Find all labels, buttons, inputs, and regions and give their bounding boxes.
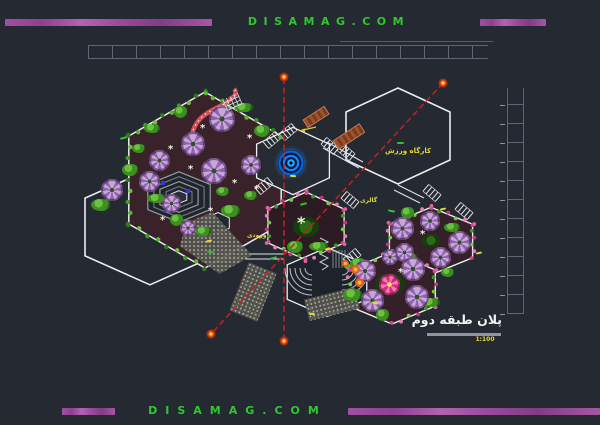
blue-block-mark	[186, 189, 190, 193]
bush	[234, 103, 253, 112]
hexagon-cell	[268, 192, 344, 260]
banner-bar-bottom-left	[62, 408, 115, 415]
plant-mark: *	[254, 187, 259, 193]
plant-mark: *	[420, 232, 425, 238]
hexagon-cell	[346, 88, 450, 184]
flower-purple	[201, 158, 227, 184]
tree-symbol: *	[297, 218, 305, 228]
plant-mark: *	[160, 218, 165, 224]
green-mark	[270, 256, 277, 260]
bush	[343, 289, 362, 301]
flower-purple	[401, 257, 425, 281]
flower-orange	[351, 265, 360, 274]
banner-bar-top-left	[5, 19, 212, 26]
flower-purple	[101, 179, 123, 201]
plant-mark: *	[188, 167, 193, 173]
yellow-mark	[476, 251, 482, 254]
yellow-mark	[206, 239, 212, 242]
flower-purple	[209, 106, 235, 132]
bush	[91, 199, 110, 211]
grass-mound	[375, 273, 405, 295]
yellow-mark	[325, 248, 331, 251]
room-label: گالری	[360, 197, 377, 204]
flower-orange	[342, 260, 349, 267]
bush	[216, 187, 229, 196]
flower-purple	[180, 220, 196, 236]
bush	[287, 241, 303, 253]
flower-purple	[420, 211, 440, 231]
bush	[441, 268, 454, 277]
plant-mark: *	[232, 181, 237, 187]
green-mark	[207, 250, 214, 253]
hexagon-cell	[85, 169, 215, 284]
stone-path	[304, 287, 360, 321]
cad-screenshot: DISAMAG.COM کارگاه ورزشگالریورودی*******…	[0, 0, 600, 425]
bush	[195, 227, 211, 236]
flower-pink	[379, 274, 400, 295]
yellow-mark	[290, 175, 296, 178]
bush	[144, 124, 160, 133]
stone-path	[180, 212, 252, 274]
site-watermark-bottom: DISAMAG.COM	[125, 404, 350, 417]
flower-purple	[354, 260, 376, 282]
ramp	[333, 123, 366, 150]
flower-purple	[241, 155, 261, 175]
green-mark	[300, 202, 307, 206]
bush	[221, 205, 240, 217]
flower-orange	[355, 278, 364, 287]
bush	[174, 106, 187, 118]
spiral-fountain	[278, 150, 304, 176]
bush	[401, 207, 414, 219]
top-extra-line	[340, 41, 493, 42]
plan-title: پلان طبقه دوم	[420, 312, 502, 327]
bush	[405, 260, 424, 272]
flower-purple	[139, 171, 160, 192]
banner-bar-bottom-right	[348, 408, 600, 415]
hexagon-cell	[287, 248, 367, 317]
yellow-mark	[309, 313, 315, 315]
bush	[132, 144, 145, 153]
room-label: ورودی	[247, 232, 267, 239]
flower-purple	[395, 243, 414, 262]
bush	[254, 125, 270, 137]
flower-purple	[391, 217, 414, 240]
bush	[244, 191, 257, 200]
yellow-mark	[372, 301, 378, 304]
green-mark	[397, 142, 404, 144]
bush	[122, 164, 138, 176]
bush	[376, 309, 389, 321]
plant-mark: *	[200, 126, 205, 132]
right-dimension-ruler	[507, 88, 524, 314]
blue-block-mark	[161, 181, 165, 185]
flower-purple	[162, 194, 181, 213]
ramp	[302, 106, 329, 129]
bush	[444, 223, 460, 232]
green-mark	[120, 136, 127, 140]
bush	[147, 194, 166, 203]
green-mark	[388, 209, 395, 212]
flower-purple	[382, 249, 398, 265]
plant-mark: *	[247, 136, 252, 142]
grass-mound	[422, 234, 440, 247]
grass-mound	[293, 217, 319, 237]
flower-purple	[181, 132, 205, 156]
plant-mark: *	[168, 147, 173, 153]
flower-purple	[149, 150, 170, 171]
blue-block-mark	[164, 208, 168, 212]
site-watermark-top: DISAMAG.COM	[213, 15, 445, 28]
plant-mark: *	[398, 270, 403, 276]
bush	[170, 214, 183, 226]
yellow-mark	[440, 207, 446, 210]
hexagon-cell	[257, 127, 330, 194]
flower-purple	[430, 247, 451, 268]
flower-purple	[405, 285, 429, 309]
green-mark	[345, 265, 352, 269]
plan-scale: 1:100	[468, 336, 502, 343]
hexagon-cell	[207, 213, 230, 234]
flower-purple	[361, 289, 384, 312]
top-dimension-ruler	[88, 45, 488, 59]
hexagon-cell	[129, 92, 281, 268]
stone-path	[229, 262, 276, 321]
banner-bar-top-right	[480, 19, 546, 26]
hexagon-cell	[389, 207, 472, 274]
flower-purple	[448, 231, 471, 254]
bush	[309, 242, 328, 251]
trellis-grid	[222, 93, 242, 111]
bush	[350, 258, 366, 270]
bush	[421, 298, 440, 307]
plant-mark: *	[208, 209, 213, 215]
right-ruler-ticks	[500, 95, 505, 315]
room-label: کارگاه ورزش	[385, 147, 431, 155]
bush	[401, 253, 417, 262]
